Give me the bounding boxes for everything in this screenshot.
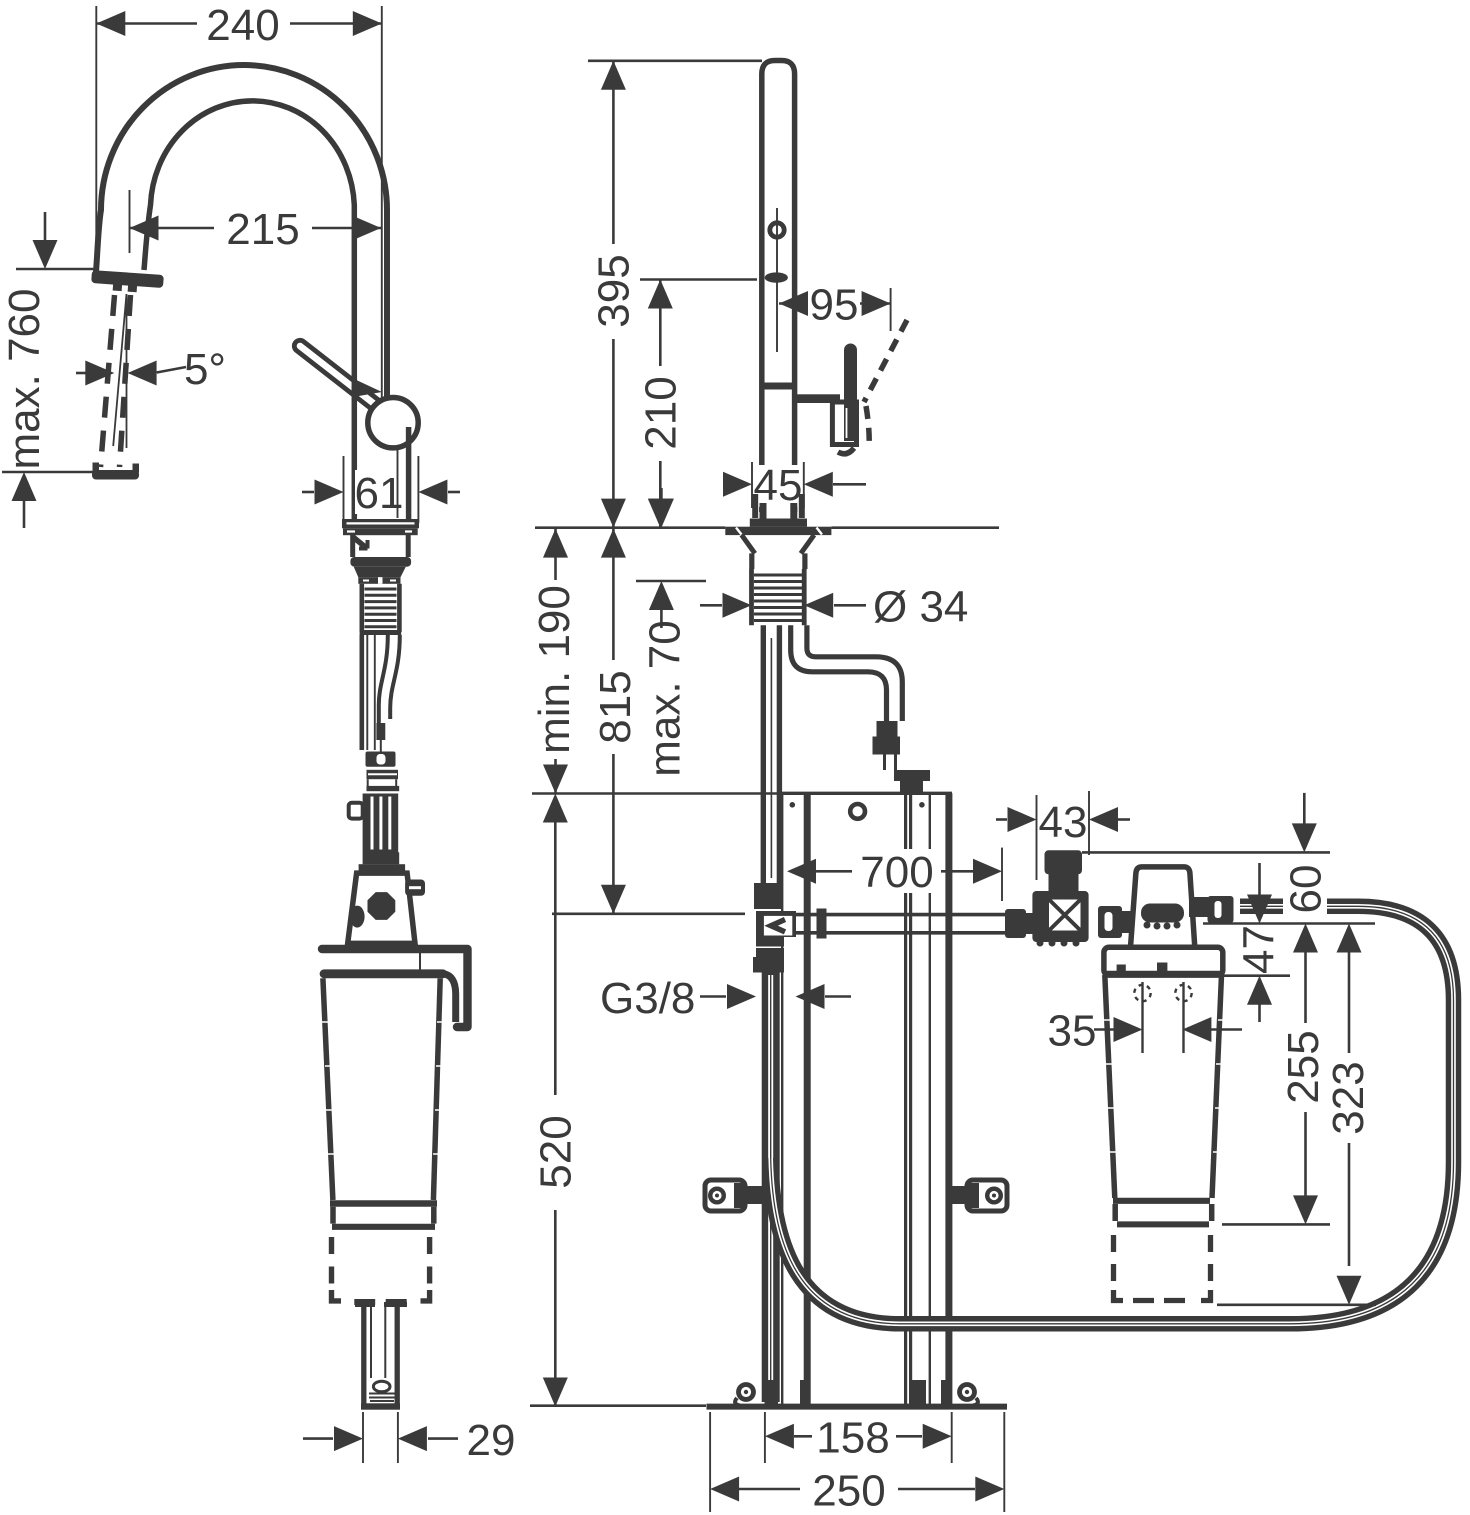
svg-text:700: 700 [860, 848, 933, 897]
svg-text:323: 323 [1324, 1061, 1373, 1134]
svg-text:61: 61 [355, 469, 404, 518]
svg-text:5°: 5° [184, 345, 226, 394]
svg-text:95: 95 [810, 281, 859, 330]
svg-text:45: 45 [754, 461, 803, 510]
svg-text:Ø 34: Ø 34 [873, 583, 968, 632]
svg-text:240: 240 [206, 1, 279, 50]
svg-text:min. 190: min. 190 [530, 585, 579, 754]
svg-text:215: 215 [226, 205, 299, 254]
svg-text:35: 35 [1048, 1007, 1097, 1056]
svg-text:158: 158 [816, 1414, 889, 1463]
svg-text:250: 250 [812, 1467, 885, 1515]
svg-text:43: 43 [1039, 798, 1088, 847]
svg-text:255: 255 [1279, 1030, 1328, 1103]
svg-text:815: 815 [591, 670, 640, 743]
svg-text:395: 395 [589, 254, 638, 327]
svg-text:520: 520 [532, 1115, 581, 1188]
svg-text:max. 70: max. 70 [641, 620, 690, 777]
svg-text:60: 60 [1282, 865, 1331, 914]
svg-text:210: 210 [636, 376, 685, 449]
svg-text:47: 47 [1235, 925, 1284, 974]
svg-text:max. 760: max. 760 [0, 289, 49, 470]
svg-text:G3/8: G3/8 [600, 974, 695, 1023]
svg-text:29: 29 [467, 1416, 516, 1465]
